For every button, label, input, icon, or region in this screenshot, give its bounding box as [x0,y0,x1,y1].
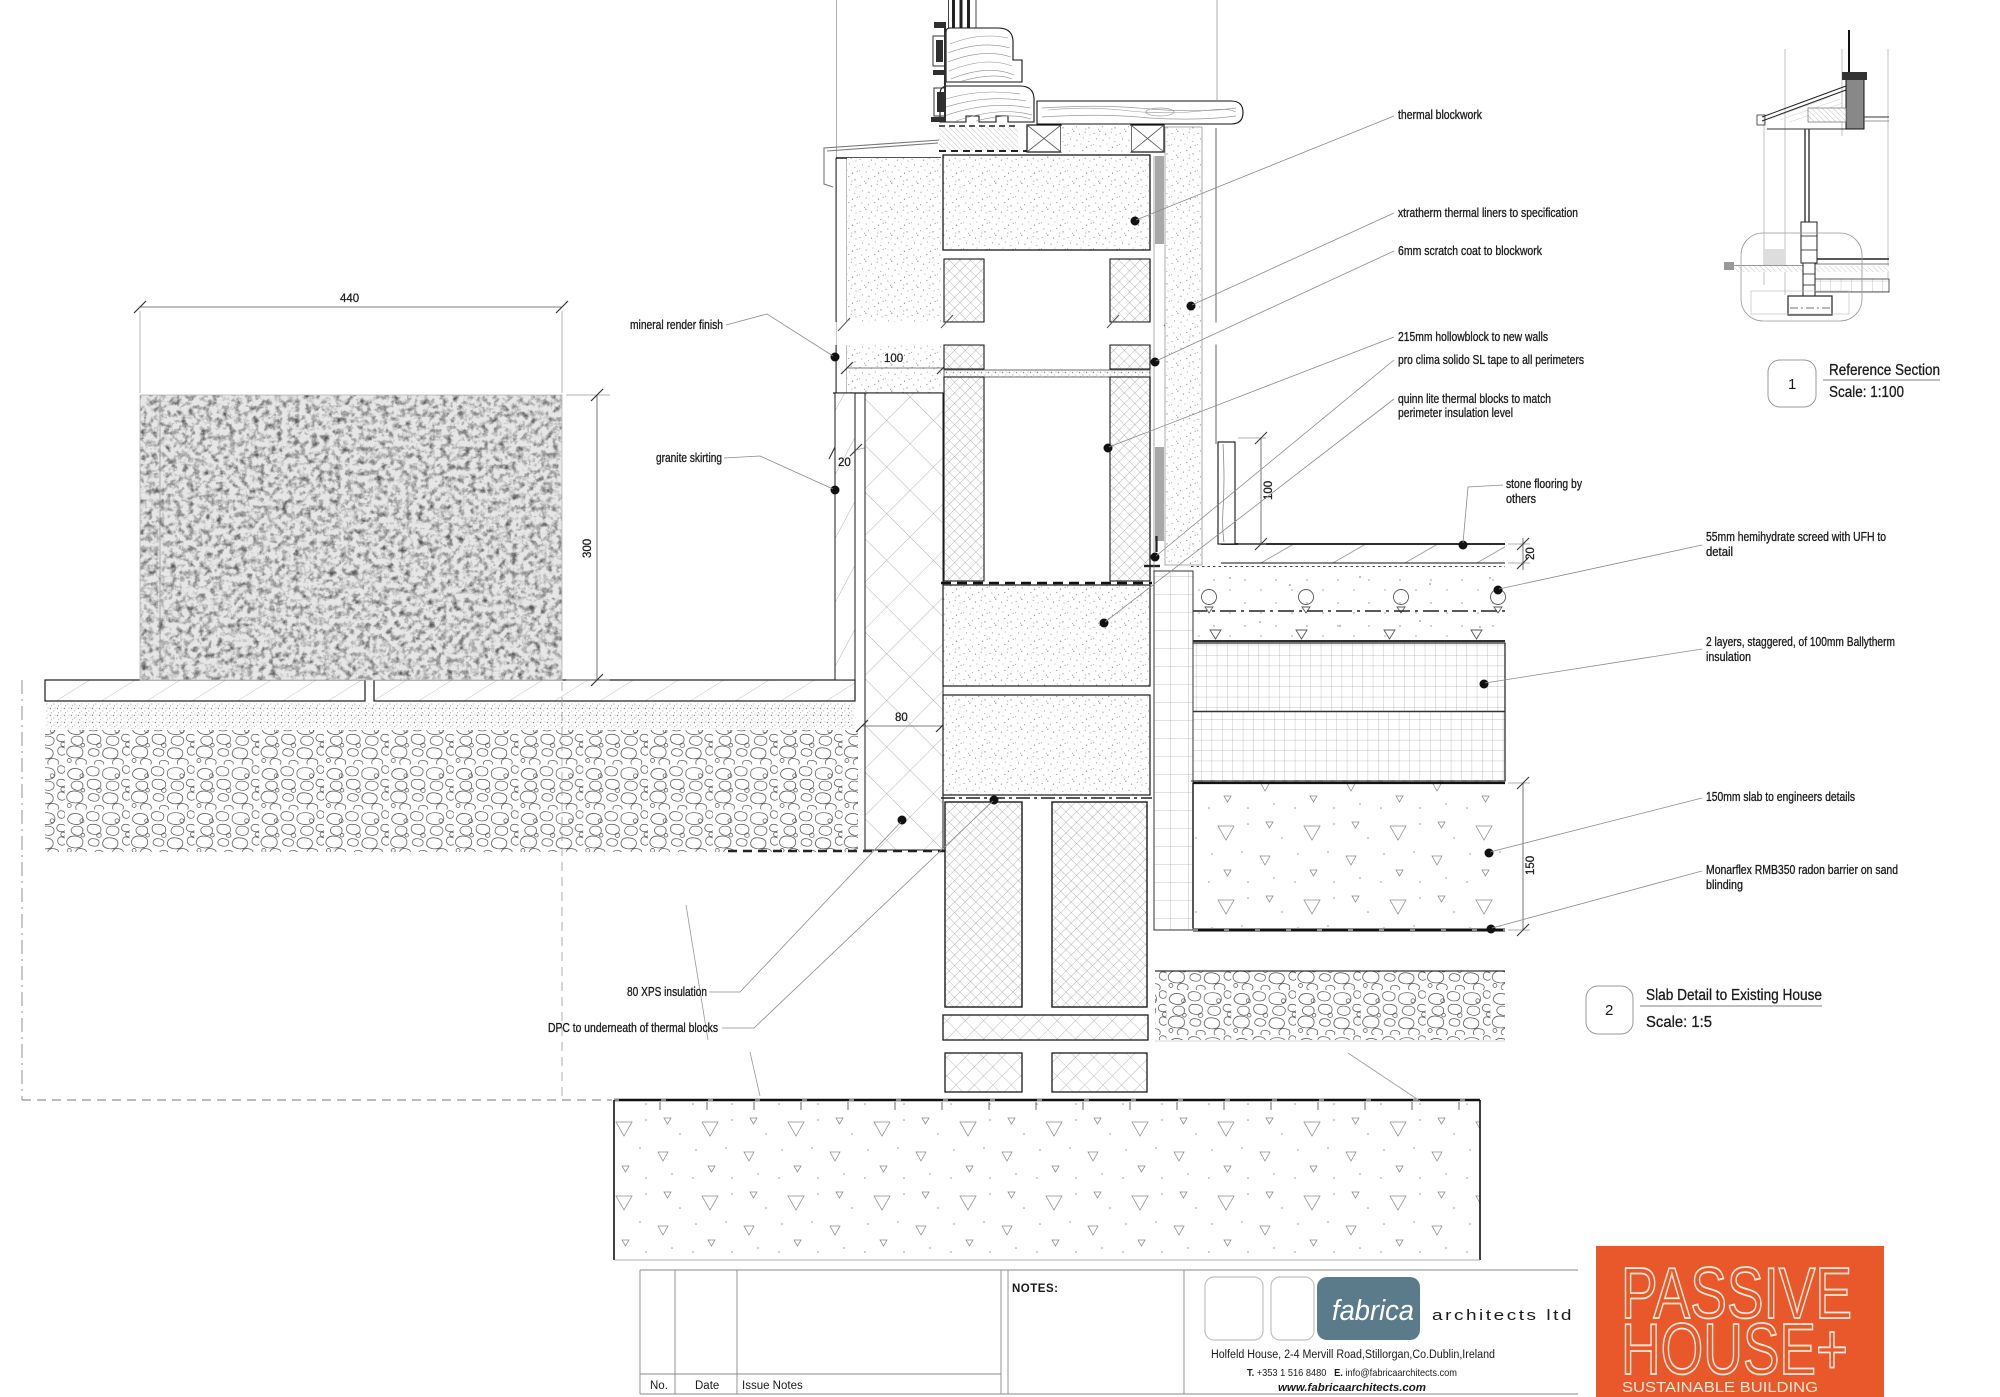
svg-text:No.: No. [650,1380,668,1392]
svg-text:80: 80 [895,712,908,724]
svg-text:300: 300 [582,539,594,558]
svg-text:NOTES:: NOTES: [1012,1283,1058,1295]
svg-text:insulation: insulation [1706,650,1751,664]
svg-text:perimeter insulation level: perimeter insulation level [1398,406,1513,420]
svg-text:architects ltd: architects ltd [1432,1307,1574,1324]
svg-text:20: 20 [1525,547,1537,560]
svg-text:SUSTAINABLE BUILDING: SUSTAINABLE BUILDING [1622,1380,1818,1396]
svg-text:Reference Section: Reference Section [1829,362,1940,379]
svg-text:2: 2 [1605,1002,1613,1019]
svg-text:detail: detail [1706,545,1733,559]
svg-text:150: 150 [1525,856,1537,875]
svg-text:granite skirting: granite skirting [656,451,722,465]
svg-text:www.fabricaarchitects.com: www.fabricaarchitects.com [1278,1382,1426,1394]
svg-text:100: 100 [884,353,903,365]
svg-text:20: 20 [838,457,851,469]
svg-text:stone flooring by: stone flooring by [1506,477,1583,491]
svg-text:DPC to underneath of thermal b: DPC to underneath of thermal blocks [548,1021,718,1035]
svg-text:quinn lite thermal blocks to m: quinn lite thermal blocks to match [1398,392,1551,406]
svg-text:mineral render finish: mineral render finish [630,318,723,332]
svg-text:thermal blockwork: thermal blockwork [1398,108,1483,122]
svg-text:Monarflex RMB350 radon barrier: Monarflex RMB350 radon barrier on sand [1706,863,1898,877]
svg-text:Date: Date [695,1380,719,1392]
svg-text:others: others [1506,492,1536,506]
svg-text:6mm scratch coat to blockwork: 6mm scratch coat to blockwork [1398,244,1543,258]
svg-text:Scale: 1:5: Scale: 1:5 [1646,1014,1712,1031]
svg-text:100: 100 [1263,481,1275,500]
svg-text:1: 1 [1788,376,1796,393]
svg-text:215mm hollowblock to new walls: 215mm hollowblock to new walls [1398,330,1548,344]
svg-text:80 XPS insulation: 80 XPS insulation [627,985,707,999]
svg-text:T. +353 1 516 8480 E. info@f: T. +353 1 516 8480 E. info@fabricaarchit… [1247,1367,1457,1379]
svg-text:440: 440 [340,293,359,305]
svg-text:2 layers, staggered, of 100mm: 2 layers, staggered, of 100mm Ballytherm [1706,635,1895,649]
svg-text:Slab Detail to Existing House: Slab Detail to Existing House [1646,987,1822,1004]
svg-text:pro clima solido SL tape to al: pro clima solido SL tape to all perimete… [1398,353,1584,367]
svg-text:150mm slab to engineers detail: 150mm slab to engineers details [1706,790,1855,804]
svg-text:Issue Notes: Issue Notes [742,1380,803,1392]
svg-text:blinding: blinding [1706,878,1743,892]
svg-text:55mm hemihydrate screed with U: 55mm hemihydrate screed with UFH to [1706,530,1886,544]
svg-text:Holfeld House, 2-4 Mervill Roa: Holfeld House, 2-4 Mervill Road,Stillorg… [1211,1349,1495,1361]
svg-text:Scale: 1:100: Scale: 1:100 [1829,384,1904,401]
svg-text:fabrica: fabrica [1332,1295,1414,1327]
svg-text:xtratherm thermal liners to sp: xtratherm thermal liners to specificatio… [1398,206,1578,220]
svg-text:HOUSE+: HOUSE+ [1621,1310,1848,1390]
